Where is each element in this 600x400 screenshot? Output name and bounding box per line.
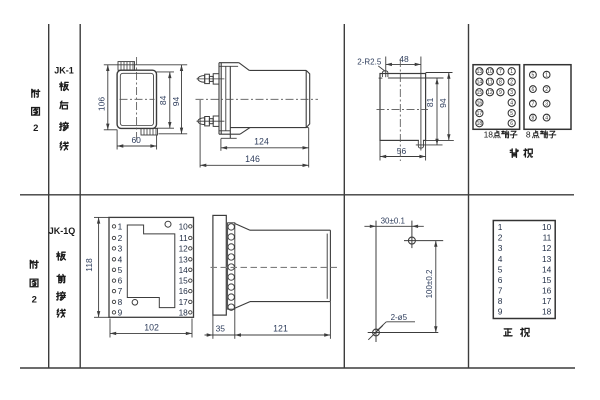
svg-text:5: 5	[498, 264, 503, 274]
svg-text:146: 146	[245, 154, 260, 164]
svg-text:18: 18	[477, 121, 483, 127]
svg-text:2-ø5: 2-ø5	[391, 313, 408, 322]
svg-text:6: 6	[510, 121, 513, 127]
svg-text:14: 14	[179, 265, 189, 275]
svg-text:13: 13	[542, 254, 552, 264]
svg-text:2: 2	[118, 233, 123, 243]
svg-text:17: 17	[477, 111, 483, 117]
svg-text:15: 15	[542, 275, 552, 285]
svg-text:1: 1	[118, 221, 123, 231]
svg-text:1: 1	[498, 222, 503, 232]
svg-text:9: 9	[118, 307, 123, 317]
svg-text:12: 12	[179, 243, 189, 253]
svg-text:16: 16	[179, 286, 189, 296]
svg-text:8: 8	[498, 296, 503, 306]
svg-text:10: 10	[487, 69, 493, 75]
svg-text:3: 3	[510, 90, 513, 96]
svg-text:1: 1	[545, 73, 548, 79]
svg-text:18: 18	[484, 130, 494, 140]
svg-text:JK-1: JK-1	[54, 66, 74, 76]
svg-text:8: 8	[526, 130, 531, 140]
svg-text:15: 15	[179, 276, 189, 286]
svg-text:11: 11	[487, 80, 492, 86]
svg-text:121: 121	[273, 323, 288, 333]
svg-text:2: 2	[498, 233, 503, 243]
svg-text:6: 6	[498, 275, 503, 285]
svg-text:2: 2	[510, 80, 513, 86]
svg-text:124: 124	[254, 137, 269, 147]
svg-text:5: 5	[532, 73, 535, 79]
svg-text:7: 7	[498, 285, 503, 295]
svg-text:18: 18	[179, 307, 189, 317]
svg-text:13: 13	[477, 69, 483, 75]
svg-text:10: 10	[542, 222, 552, 232]
svg-text:81: 81	[425, 97, 435, 107]
svg-text:106: 106	[96, 97, 106, 111]
svg-text:16: 16	[542, 285, 552, 295]
svg-text:3: 3	[498, 243, 503, 253]
svg-text:7: 7	[532, 101, 535, 107]
svg-text:2-R2.5: 2-R2.5	[357, 58, 382, 67]
svg-text:2: 2	[32, 295, 37, 306]
svg-text:6: 6	[118, 276, 123, 286]
svg-text:12: 12	[487, 90, 493, 96]
svg-text:4: 4	[545, 115, 548, 121]
svg-text:10: 10	[179, 221, 189, 231]
svg-text:17: 17	[542, 296, 552, 306]
svg-text:56: 56	[397, 146, 407, 156]
svg-text:16: 16	[477, 100, 483, 106]
svg-text:35: 35	[216, 323, 226, 333]
svg-text:118: 118	[84, 258, 94, 272]
svg-text:9: 9	[498, 307, 503, 317]
svg-text:18: 18	[542, 307, 552, 317]
svg-text:4: 4	[118, 254, 123, 264]
svg-text:6: 6	[532, 87, 535, 93]
svg-text:15: 15	[477, 90, 483, 96]
svg-text:100±0.2: 100±0.2	[425, 269, 434, 298]
svg-text:11: 11	[543, 233, 552, 243]
svg-text:11: 11	[179, 233, 188, 243]
svg-text:8: 8	[532, 115, 535, 121]
svg-text:8: 8	[499, 80, 502, 86]
svg-text:14: 14	[542, 264, 552, 274]
svg-text:30±0.1: 30±0.1	[381, 216, 406, 225]
svg-text:9: 9	[499, 90, 502, 96]
svg-text:4: 4	[498, 254, 503, 264]
svg-text:14: 14	[477, 80, 483, 86]
svg-text:3: 3	[545, 101, 548, 107]
svg-text:17: 17	[179, 297, 189, 307]
svg-text:5: 5	[118, 265, 123, 275]
svg-text:5: 5	[510, 111, 513, 117]
svg-text:94: 94	[438, 98, 448, 108]
svg-text:12: 12	[542, 243, 552, 253]
svg-text:13: 13	[179, 254, 189, 264]
svg-text:94: 94	[171, 97, 181, 107]
svg-text:8: 8	[118, 297, 123, 307]
svg-text:102: 102	[144, 322, 159, 332]
svg-text:4: 4	[510, 100, 513, 106]
svg-text:2: 2	[545, 87, 548, 93]
svg-text:7: 7	[118, 286, 123, 296]
svg-text:60: 60	[131, 135, 141, 145]
svg-text:7: 7	[499, 69, 502, 75]
svg-text:84: 84	[158, 95, 168, 105]
svg-text:JK-1Q: JK-1Q	[49, 226, 76, 236]
svg-text:2: 2	[33, 123, 38, 134]
svg-text:3: 3	[118, 243, 123, 253]
svg-text:1: 1	[510, 69, 513, 75]
